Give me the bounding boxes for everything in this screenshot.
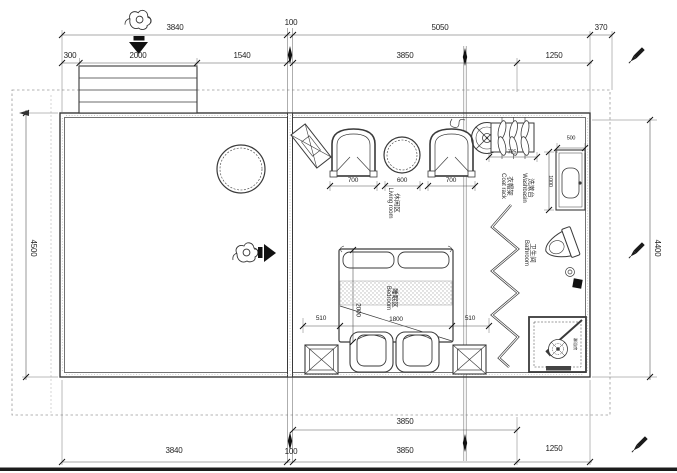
entry-steps: [79, 66, 197, 113]
pen-icon-bottom: [630, 436, 647, 453]
room-label-bedroom-en: Bedroom: [384, 286, 391, 310]
dim-top1-5050: 5050: [432, 24, 449, 32]
dim-washbasin-w: 500: [567, 136, 576, 142]
room-label-coat-rack-zh: 衣帽架: [506, 176, 513, 196]
washbasin-counter: [556, 150, 585, 210]
person-icon-top: [124, 8, 152, 31]
room-label-washbasin-zh: 洗漱台: [527, 178, 534, 198]
dim-top2-1250: 1250: [546, 52, 563, 60]
floor-plan-linework: [0, 0, 677, 473]
nightstand-right: [453, 345, 486, 374]
zigzag-partition: [492, 205, 518, 367]
room-label-shower-zh: 淋浴房: [573, 338, 577, 351]
toilet-paper-holder: [566, 268, 575, 277]
dim-top1-370: 370: [595, 24, 608, 32]
dim-armchair-right: 700: [446, 178, 456, 185]
grid-lines: [288, 28, 467, 463]
dim-bot2-100: 100: [285, 448, 298, 456]
toilet: [541, 226, 580, 265]
room-label-coat-rack-en: Coat rack: [499, 173, 506, 199]
dim-bed-width: 1800: [389, 317, 403, 324]
armchair-left: [330, 129, 377, 177]
page-bottom-border: [0, 468, 677, 472]
dim-washbasin-d: 1000: [546, 175, 552, 186]
dim-bot1-3850: 3850: [397, 418, 414, 426]
dim-top1-100: 100: [285, 19, 298, 27]
room-label-bathroom: 卫生间 Bathroom: [522, 240, 536, 266]
room-label-living-en: Living room: [386, 187, 393, 218]
room-label-washbasin-en: Washbasin: [520, 173, 527, 202]
dim-bed-side-left: 510: [316, 316, 326, 323]
dim-bot2-3840: 3840: [166, 447, 183, 455]
dim-top1-3840: 3840: [167, 24, 184, 32]
tea-table: [384, 137, 420, 173]
dim-top2-2000: 2000: [130, 52, 147, 60]
room-label-living-zh: 休闲区: [393, 193, 400, 213]
room-label-bathroom-zh: 卫生间: [529, 243, 536, 263]
room-label-bedroom: 睡眠区 Bedroom: [384, 286, 398, 310]
decor-diamond: [291, 124, 331, 168]
room-label-bedroom-zh: 睡眠区: [391, 288, 398, 308]
dim-left-4500: 4500: [29, 240, 37, 257]
dim-bot2-3850: 3850: [397, 447, 414, 455]
dim-right-4400: 4400: [653, 240, 661, 257]
room-label-coat-rack: 衣帽架 Coat rack: [499, 173, 513, 199]
person-icon-deck: [233, 243, 258, 262]
dim-top2-3850: 3850: [397, 52, 414, 60]
room-label-shower: 淋浴房: [573, 338, 577, 351]
floor-drain: [572, 278, 582, 288]
dim-bot2-1250: 1250: [546, 445, 563, 453]
nightstand-left: [305, 345, 338, 374]
entry-arrow-right-icon: [258, 244, 276, 262]
dim-top2-300: 300: [64, 52, 77, 60]
deck-round-table: [217, 145, 265, 193]
dim-bed-length: 2000: [354, 303, 361, 317]
room-label-washbasin: 洗漱台 Washbasin: [520, 173, 534, 202]
dim-top2-1540: 1540: [234, 52, 251, 60]
floor-plan-canvas: 3840 100 5050 370 300 2000 1540 3850 125…: [0, 0, 677, 473]
dim-armchair-left: 700: [348, 178, 358, 185]
room-label-bathroom-en: Bathroom: [522, 240, 529, 266]
dim-bed-side-right: 510: [465, 316, 475, 323]
pen-icon-top: [627, 47, 644, 64]
dim-tea-table: 600: [397, 178, 407, 185]
dim-coat-rack: 725: [508, 150, 517, 156]
room-label-living: 休闲区 Living room: [386, 187, 400, 218]
armchair-right: [428, 129, 475, 177]
pen-icon-middle: [627, 242, 644, 259]
